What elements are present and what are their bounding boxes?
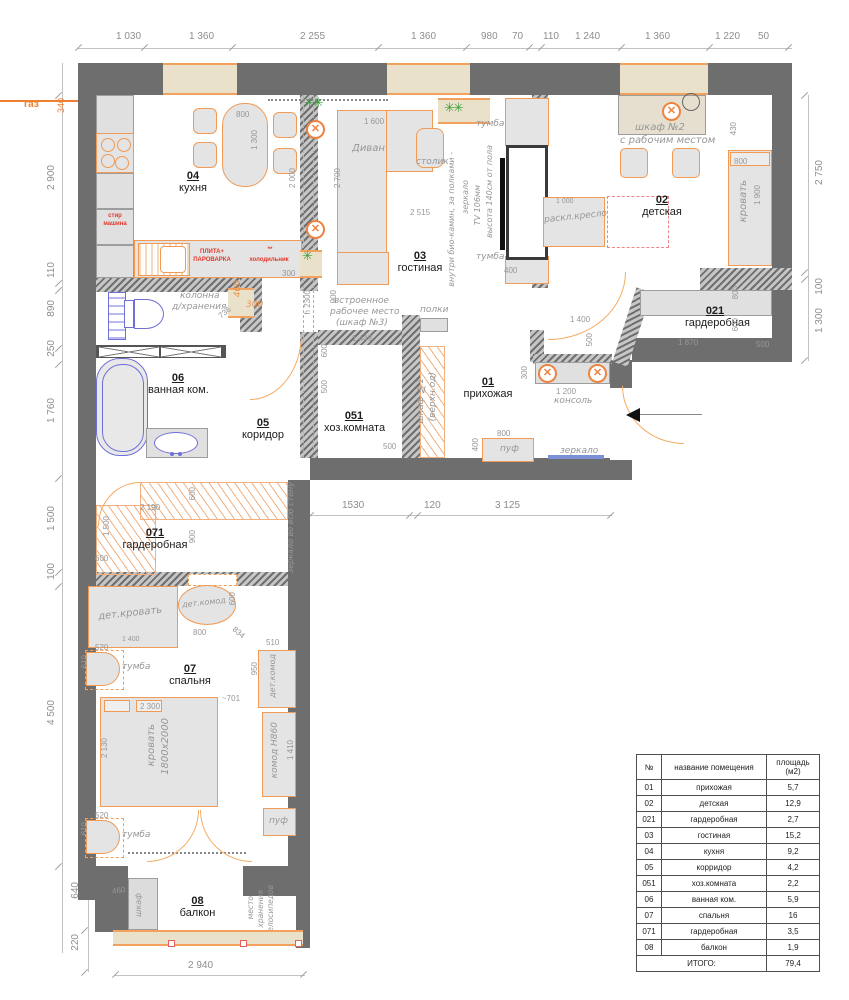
dim-label: 1 300 [814,308,825,333]
dim-label: 1 360 [189,31,214,42]
table-total-row: ИТОГО: 79,4 [637,956,820,972]
floor-plan: 1 030 1 360 2 255 1 360 980 70 110 1 240… [0,0,849,1000]
dim-label: 1 900 [753,185,762,205]
wardrobe-run [140,482,288,520]
room-number: 04 [163,170,223,182]
tumba-label: тумба [476,119,504,129]
console-label: консоль [554,396,592,406]
wall [772,95,792,360]
room-number: 07 [165,663,215,675]
curtain-line [268,99,388,104]
nightstand [86,652,120,686]
nightstand [86,820,120,854]
dim-label: 610 [80,822,89,835]
dim-label: 300 [246,300,263,310]
table-row: 04кухня9,2 [637,844,820,860]
dim-line-right [808,95,809,361]
bike-storage-label: велосипедов [266,885,275,936]
fridge-mark: ** [262,247,278,255]
dim-line-bottom [115,975,305,976]
room-name: ванная ком. [148,384,208,396]
dim-label: 600 [95,554,108,563]
window [620,63,708,95]
room-number: 03 [390,250,450,262]
bed-label: кровать [146,724,157,766]
tumba-label: тумба [122,662,150,672]
dim-label: 1 000 [556,198,574,205]
room-label-wardrobe071: 071 гардеробная [120,527,190,551]
sofa-label: Диван [352,143,385,154]
room-label-balcony: 08 балкон [170,895,225,919]
balcony-closet [128,878,158,930]
living-note: TV 106мм [473,185,482,225]
chair [193,142,217,168]
column-label: колонна [180,291,220,301]
dim-label: 800 [731,286,740,299]
kitchen-cabinet [96,173,134,209]
table-row: 08балкон1,9 [637,940,820,956]
closet-label: с рабочим местом [620,135,715,146]
dim-label: 300 [520,366,529,379]
bed [100,697,218,807]
dim-label: 2 130 [100,738,109,758]
room-name: балкон [170,907,225,919]
table-row: 021гардеробная2,7 [637,812,820,828]
utility-note: рабочее место [330,307,400,317]
dim-label: 400 [471,438,480,451]
dim-label: 1 870 [678,338,698,347]
table-row: 071гардеробная3,5 [637,924,820,940]
toilet-tank [124,300,134,328]
dim-line-mid [310,515,612,516]
room-number: 071 [120,527,190,539]
vent-icon: ✕ [306,220,325,239]
dim-label: 800 [236,110,249,119]
dim-label: 1 240 [575,31,600,42]
dim-label: 120 [424,500,441,511]
dim-label: 2 255 [300,31,325,42]
living-note: зеркало [461,180,470,214]
dim-label: 400 [233,280,243,297]
dim-label: 2 190 [140,503,160,512]
sofa-chaise [337,110,387,275]
burner-icon [101,138,115,152]
table-row: 051хоз.комната2,2 [637,876,820,892]
dim-label: 1 600 [364,117,384,126]
mirror [548,455,604,459]
utility-note: встроенное [334,296,389,306]
utility-note: (шкаф №3) [336,318,388,328]
room-name: хоз.комната [324,422,384,434]
closet1-label: (верхн.од) [428,372,438,421]
wall [243,866,310,896]
dim-label: 1 760 [46,398,57,423]
plant-icon: ✳✳ [304,95,322,111]
col-header: № [637,755,662,780]
dim-label: 890 [46,300,57,317]
vent-icon: ✕ [538,364,557,383]
tv-niche [506,145,548,260]
table-row: 02детская12,9 [637,796,820,812]
wall [610,460,632,480]
col-header: площадь (м2) [767,755,820,780]
dim-label: 600 [188,487,197,500]
coffee-table-label: столик [416,157,449,167]
dim-label: 220 [70,934,81,951]
bike-storage-label: место [246,896,255,919]
dim-label: 1530 [342,500,364,511]
toilet [134,299,164,329]
railing-post [168,940,175,947]
washer-label: стир машина [98,213,132,228]
dim-line-left [62,63,63,953]
kitchen-cabinet [96,245,134,278]
table-row: 01прихожая5,7 [637,780,820,796]
sink-basin [160,246,186,273]
dim-label: 50 [758,31,769,42]
faucet-dot [178,452,182,456]
room-name: гардеробная [120,539,190,551]
wall-hatched [96,278,242,292]
vent-icon: ✕ [588,364,607,383]
table-row: 07спальня16 [637,908,820,924]
dim-label: 600 [320,344,329,357]
bath-cabinet [160,346,222,358]
dim-label: 1 300 [250,130,259,150]
room-label-bath: 06 ванная ком. [148,372,208,396]
dim-label: 2 000 [288,168,297,188]
dim-label: 110 [543,31,559,42]
dim-label: 1 400 [122,636,140,643]
dim-label: 110 [46,262,57,278]
dim-label: 1 449 [352,334,372,343]
room-label-living: 03 гостиная [390,250,450,274]
dim-label: ~701 [222,694,240,703]
door-arc [250,334,302,400]
room-number: 051 [324,410,384,422]
entrance-arrow-icon [626,408,640,422]
dim-label: 4 500 [46,700,57,725]
stove-label: ПЛИТА+ ПАРОВАРКА [190,249,234,264]
dim-label: 980 [481,31,498,42]
room-label-nursery: 02 детская [632,194,692,218]
faucet-dot [170,452,174,456]
wall-hatched [700,268,792,290]
dim-label: 3 125 [495,500,520,511]
shelves-label: полки [420,305,448,315]
dim-label: 430 [729,122,738,135]
fridge-label: холодильник [240,257,298,265]
dim-label: 1 400 [570,315,590,324]
dim-label: 2 940 [188,960,213,971]
balcony-closet-label: шкаф [134,893,143,917]
window [163,63,237,95]
dim-label: 2 300 [140,702,160,711]
lamp-icon [682,93,700,111]
dim-label: 900 [329,290,338,303]
dim-label: 600 [228,592,237,605]
shelf [420,318,448,332]
railing-post [240,940,247,947]
room-number: 05 [238,417,288,429]
dim-label: 610 [80,655,89,668]
entrance-arrow-line [640,414,702,415]
bathtub-inner [102,364,144,452]
room-number: 021 [685,305,745,317]
total-value: 79,4 [767,956,820,972]
dim-label: 1 500 [46,506,57,531]
dim-label: 100 [814,278,825,295]
dim-line-top [78,48,792,49]
chair [273,112,297,138]
dim-label: 2 700 [333,168,342,188]
chair [193,108,217,134]
room-label-hall: 01 прихожая [458,376,518,400]
dim-label: 1 220 [715,31,740,42]
wall [470,63,620,95]
dim-label: 500 [756,340,769,349]
dim-label: 1 360 [411,31,436,42]
balcony-railing [113,930,303,946]
total-label: ИТОГО: [637,956,767,972]
room-name: коридор [238,429,288,441]
wall [708,63,792,95]
wall [78,63,163,95]
room-name: детская [632,206,692,218]
window [387,63,470,95]
dim-label: 70 [512,31,523,42]
bike-storage-label: хранения [256,890,265,928]
room-label-corridor: 05 коридор [238,417,288,441]
wall [78,866,128,900]
dim-label: 300 [282,269,295,278]
dim-label: 1 030 [116,31,141,42]
tv-stand [505,98,549,146]
kid-dresser-right [258,650,296,708]
burner-icon [101,154,115,168]
area-table: № название помещения площадь (м2) 01прих… [636,754,820,972]
dim-label: 400 [504,266,517,275]
room-label-utility: 051 хоз.комната [324,410,384,434]
kid-dresser-label: дет.комод [268,654,277,698]
dim-label: 100 [46,563,57,580]
chair [672,148,700,178]
dim-label: 510 [266,638,279,647]
table-row: 05корридор4,2 [637,860,820,876]
dim-label: 2 515 [410,208,430,217]
nursery-bed [728,150,772,266]
room-name: спальня [165,675,215,687]
mirror-note: зеркало во всю стену [286,482,295,573]
vent-icon: ✕ [662,102,681,121]
plant-icon: ✳✳ [444,100,462,116]
dim-label: 1 410 [286,740,295,760]
dim-label: 520 [95,811,108,820]
vent-icon: ✕ [306,120,325,139]
wall [237,63,387,95]
sink [154,432,198,454]
wall [78,95,96,478]
bath-cabinet [98,346,160,358]
plant-icon: ✳ [302,248,311,264]
tv-icon [500,158,505,250]
closet-label: шкаф №2 [635,122,685,133]
room-number: 08 [170,895,225,907]
room-number: 06 [148,372,208,384]
room-label-kitchen: 04 кухня [163,170,223,194]
table-row: 03гостиная15,2 [637,828,820,844]
room-name: гостиная [390,262,450,274]
dim-label: 1 200 [556,387,576,396]
wall [310,458,610,480]
wall [95,898,128,932]
dim-label: 500 [320,380,329,393]
dim-label: 500 [585,333,594,346]
dim-label: 1 360 [645,31,670,42]
dim-label: h 2300 [303,290,312,314]
kitchen-cabinet [96,95,134,135]
room-name: кухня [163,182,223,194]
gas-line [0,100,78,102]
door-arc [548,272,626,340]
dim-label: 520 [95,643,108,652]
sofa-end [337,252,389,285]
col-header: название помещения [662,755,767,780]
table-header-row: № название помещения площадь (м2) [637,755,820,780]
bed-label: кровать [738,180,749,222]
table-row: 06ванная ком.5,9 [637,892,820,908]
burner-icon [115,156,129,170]
bed-size-label: 1800х2000 [160,718,171,775]
chair [620,148,648,178]
dim-label: 600 [731,318,740,331]
dim-label: 2 900 [46,165,57,190]
tumba-label: тумба [476,252,504,262]
dim-label: 500 [383,442,396,451]
dim-label: 250 [46,340,57,357]
room-name: прихожая [458,388,518,400]
dim-label: 2 750 [814,160,825,185]
dim-label: 834 [231,625,247,640]
dim-label: 1 500 [102,516,111,536]
room-label-bedroom: 07 спальня [165,663,215,687]
dresser-label: комод H860 [270,722,280,778]
pocket-door [188,574,237,586]
dim-label: 800 [193,628,206,637]
room-number: 02 [632,194,692,206]
dim-label: 460 [111,885,125,896]
room-number: 01 [458,376,518,388]
pouf-label: пуф [500,444,519,454]
pillow [104,700,130,712]
living-note: высота 140см от пола [485,145,494,238]
closet1-label: шкаф №1 [416,378,426,423]
dim-label: 800 [497,429,510,438]
dim-label: 800 [734,157,747,166]
pouf-label: пуф [269,816,288,826]
burner-icon [117,138,131,152]
railing-post [295,940,302,947]
